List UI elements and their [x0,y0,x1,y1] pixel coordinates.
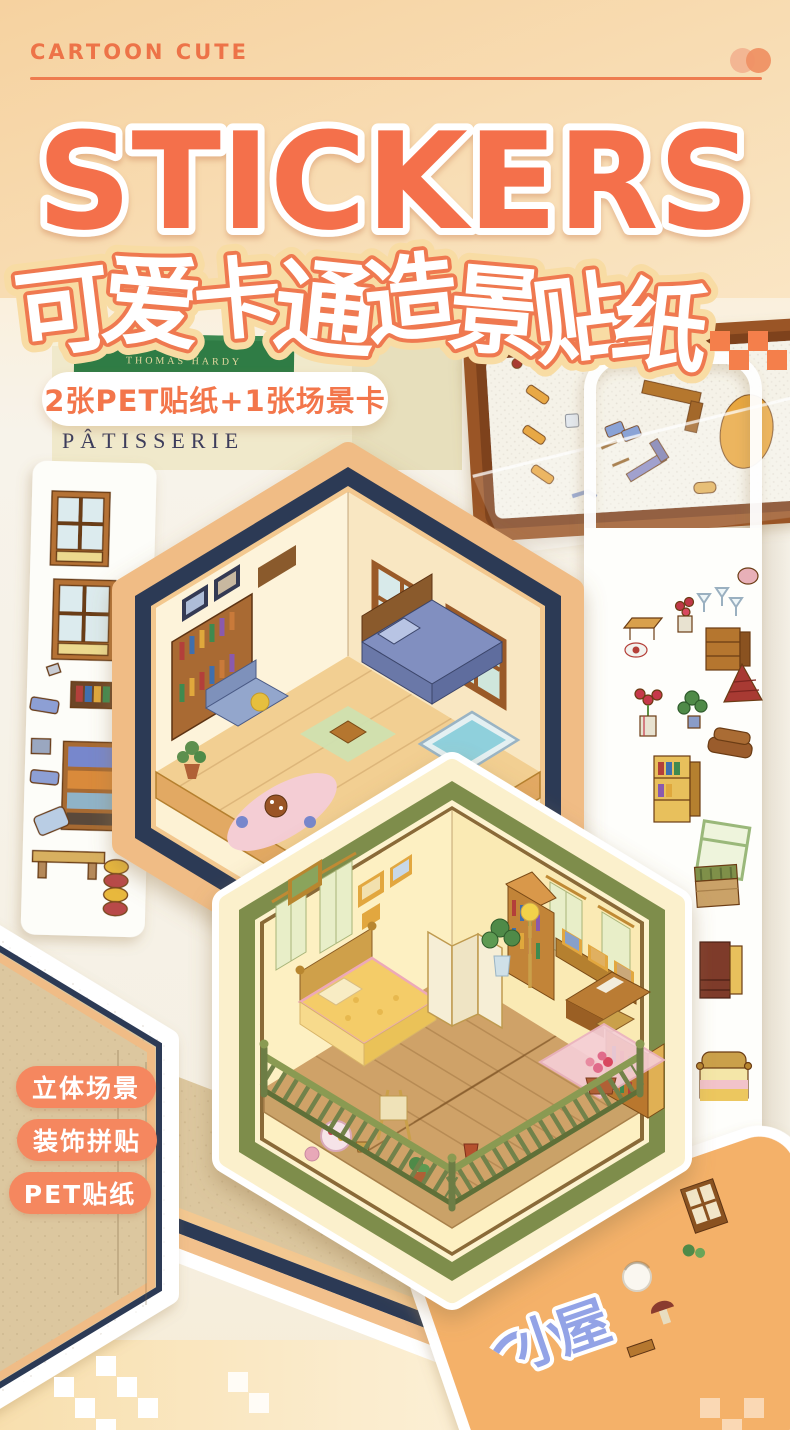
brand-text: CARTOON CUTE [30,40,249,64]
deco-circle-right [746,48,771,73]
box-label: PÂTISSERIE [62,428,244,453]
feature-tag-1: 立体场景 [16,1066,156,1108]
content-badge: 2张PET贴纸+1张场景卡 [42,372,388,426]
subtitle-sticker-text: 可 爱 卡 通 造 景 贴 纸 可 爱 卡 通 造 景 贴 纸 [0,242,740,392]
svg-text:纸: 纸 [606,266,715,389]
scene-card-b [228,768,676,1294]
content-badge-text: 2张PET贴纸+1张场景卡 [44,378,386,420]
header-rule [30,77,762,80]
feature-tag-2: 装饰拼贴 [17,1119,157,1161]
feature-tag-3: PET贴纸 [9,1172,151,1214]
subtitle-front-layer: 可 爱 卡 通 造 景 贴 纸 [9,241,715,389]
poster: PÂTISSERIE THOMAS HARDY [0,0,790,1430]
title-text: STICKERS [37,104,753,260]
